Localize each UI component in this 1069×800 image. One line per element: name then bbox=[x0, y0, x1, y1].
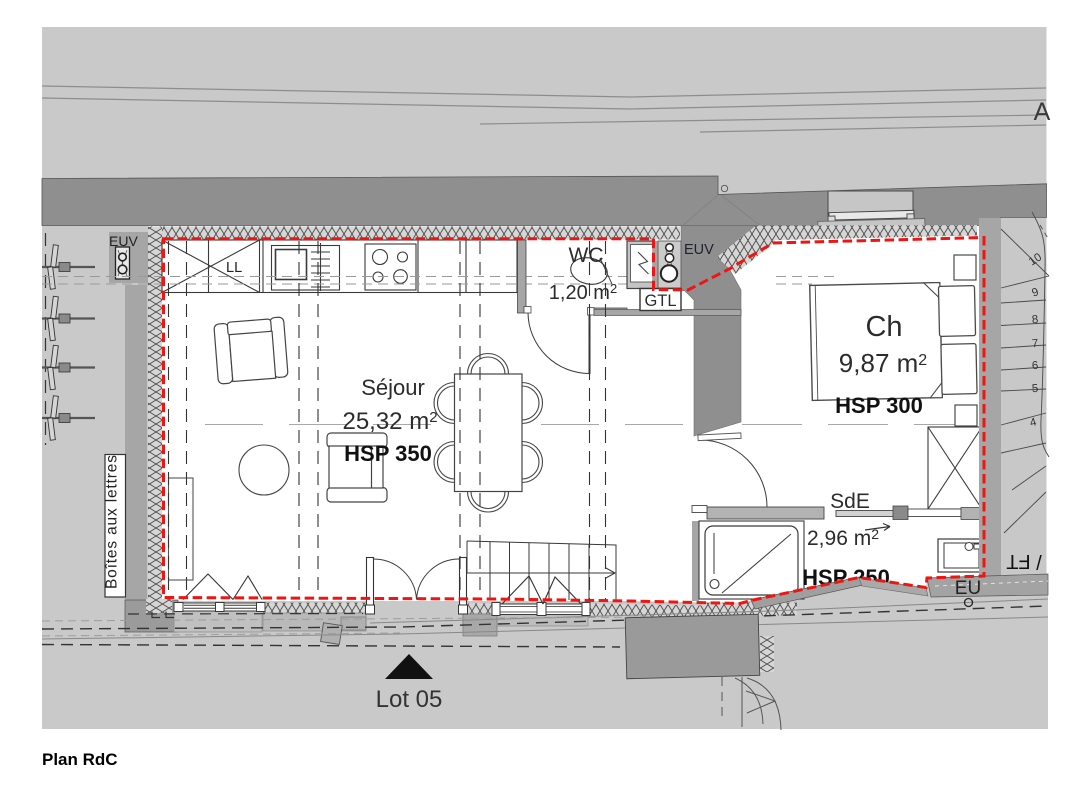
svg-text:Plan RdC: Plan RdC bbox=[42, 750, 118, 769]
svg-text:Ch: Ch bbox=[865, 311, 902, 343]
svg-text:6: 6 bbox=[1031, 360, 1038, 372]
svg-text:GTL: GTL bbox=[644, 292, 676, 310]
svg-text:25,32 m2: 25,32 m2 bbox=[342, 408, 437, 435]
svg-text:7: 7 bbox=[1031, 338, 1038, 350]
svg-text:Séjour: Séjour bbox=[361, 375, 425, 400]
svg-text:SdE: SdE bbox=[830, 490, 870, 513]
svg-text:8: 8 bbox=[1031, 314, 1039, 327]
svg-text:/ FT: / FT bbox=[1006, 550, 1042, 572]
svg-text:Boîtes aux lettres: Boîtes aux lettres bbox=[104, 455, 121, 589]
svg-text:LL: LL bbox=[226, 260, 242, 276]
svg-text:EUV: EUV bbox=[684, 242, 714, 258]
svg-text:WC: WC bbox=[569, 244, 604, 267]
svg-text:A: A bbox=[1034, 98, 1051, 126]
svg-text:2,96 m2: 2,96 m2 bbox=[807, 526, 879, 550]
svg-text:5: 5 bbox=[1031, 383, 1038, 395]
svg-text:1,20 m2: 1,20 m2 bbox=[549, 281, 617, 304]
svg-text:Lot 05: Lot 05 bbox=[376, 686, 443, 713]
svg-text:EU: EU bbox=[955, 578, 981, 599]
svg-text:HSP 350: HSP 350 bbox=[344, 441, 432, 466]
svg-text:HSP 300: HSP 300 bbox=[835, 393, 923, 418]
svg-text:9,87 m2: 9,87 m2 bbox=[839, 348, 928, 378]
